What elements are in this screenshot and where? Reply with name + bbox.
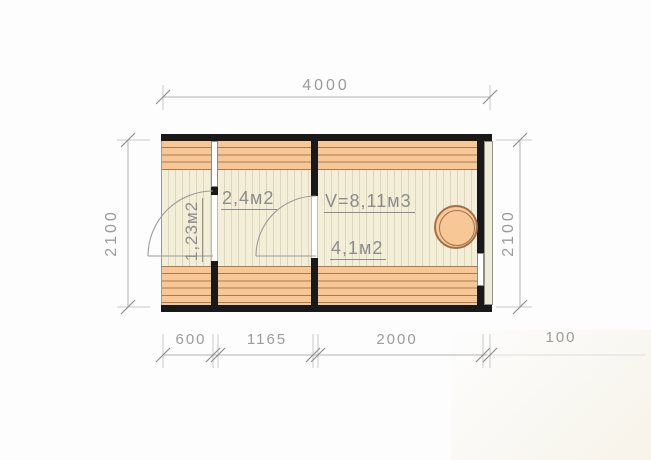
dim-label-600: 600	[175, 331, 206, 348]
dim-label-2000: 2000	[376, 331, 417, 348]
door-swing-arc-1	[148, 191, 213, 256]
dim-label-top: 4000	[302, 77, 350, 95]
floor-plan: 4000 2100 2100 600 1165 2000 100 1,23м2 …	[0, 0, 651, 460]
middle-room-area-label: 2,4м2	[221, 189, 277, 210]
sauna-area-label: 4,1м2	[330, 239, 386, 260]
dim-label-left: 2100	[103, 209, 121, 257]
porch-area-label: 1,23м2	[183, 198, 203, 262]
dim-label-100: 100	[545, 329, 576, 346]
linework-overlay	[0, 0, 651, 460]
dim-label-right: 2100	[500, 209, 518, 257]
dim-label-1165: 1165	[247, 331, 287, 348]
sauna-volume-label: V=8,11м3	[324, 192, 415, 213]
